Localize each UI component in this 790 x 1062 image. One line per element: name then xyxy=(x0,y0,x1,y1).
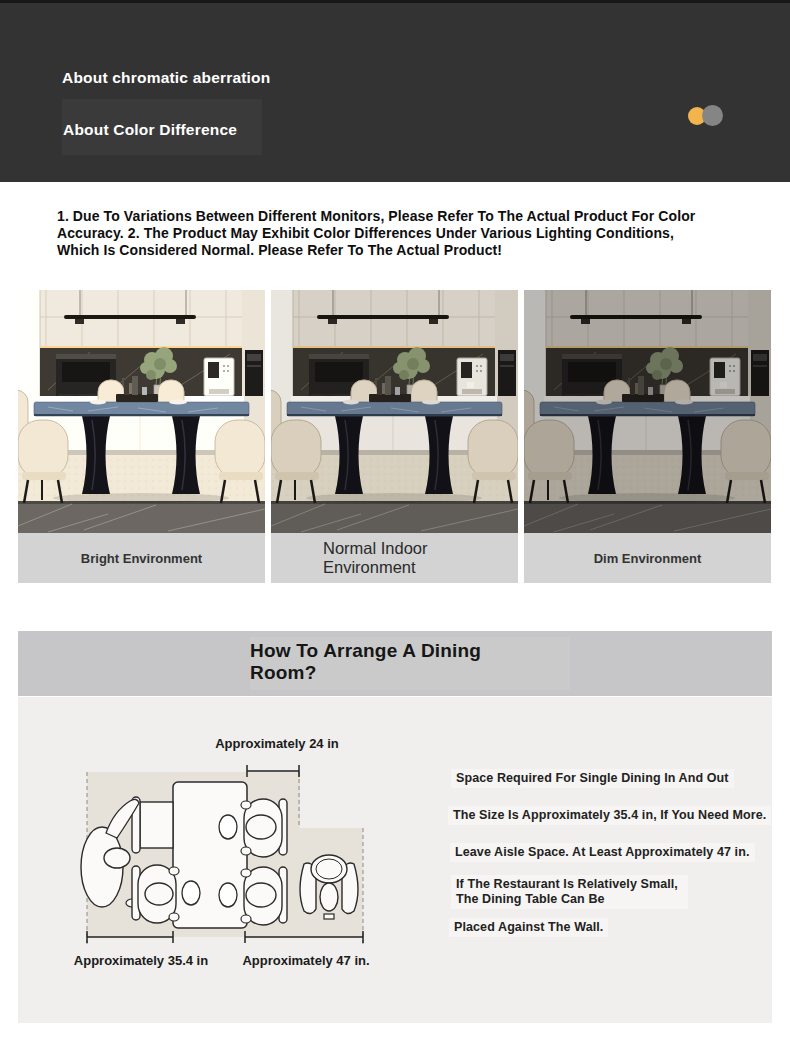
color-difference-header: About chromatic aberration About Color D… xyxy=(0,0,790,182)
arrange-note: Placed Against The Wall. xyxy=(449,918,608,937)
dimension-label-35in: Approximately 35.4 in xyxy=(56,953,226,968)
product-detail-page: About chromatic aberration About Color D… xyxy=(0,0,790,1062)
arrange-section-title: How To Arrange A Dining Room? xyxy=(250,640,580,684)
color-disclaimer-text: 1. Due To Variations Between Different M… xyxy=(57,208,707,259)
environment-caption: Dim Environment xyxy=(524,533,771,583)
color-swatch-gray-icon xyxy=(702,105,723,126)
environment-caption: Bright Environment xyxy=(18,533,265,583)
arrange-note: Leave Aisle Space. At Least Approximatel… xyxy=(450,843,755,862)
environment-caption: Normal Indoor Environment xyxy=(271,533,518,583)
dimension-label-47in: Approximately 47 in. xyxy=(221,953,391,968)
header-title: About Color Difference xyxy=(63,121,237,139)
arrange-section: Approximately 24 in Approximately 35.4 i… xyxy=(18,697,772,1023)
header-title-en: About chromatic aberration xyxy=(62,69,270,87)
kitchen-photo-dim xyxy=(524,290,771,533)
kitchen-photo-bright xyxy=(18,290,265,533)
dining-layout-diagram xyxy=(60,725,400,980)
arrange-section-banner: How To Arrange A Dining Room? xyxy=(18,631,772,696)
arrange-note: The Size Is Approximately 35.4 in, If Yo… xyxy=(448,806,771,825)
dimension-label-24in: Approximately 24 in xyxy=(192,736,362,751)
arrange-title-line1: How To Arrange A Dining xyxy=(250,640,481,661)
kitchen-photo-normal xyxy=(271,290,518,533)
arrange-note: If The Restaurant Is Relatively Small, T… xyxy=(451,875,688,909)
environment-panel-bright: Bright Environment xyxy=(18,290,265,583)
environment-panel-normal: Normal Indoor Environment xyxy=(271,290,518,583)
environment-panel-dim: Dim Environment xyxy=(524,290,771,583)
environment-comparison-row: Bright Environment Normal Indoor Environ… xyxy=(18,290,772,583)
arrange-note: Space Required For Single Dining In And … xyxy=(451,769,734,788)
arrange-title-line2: Room? xyxy=(250,662,316,683)
